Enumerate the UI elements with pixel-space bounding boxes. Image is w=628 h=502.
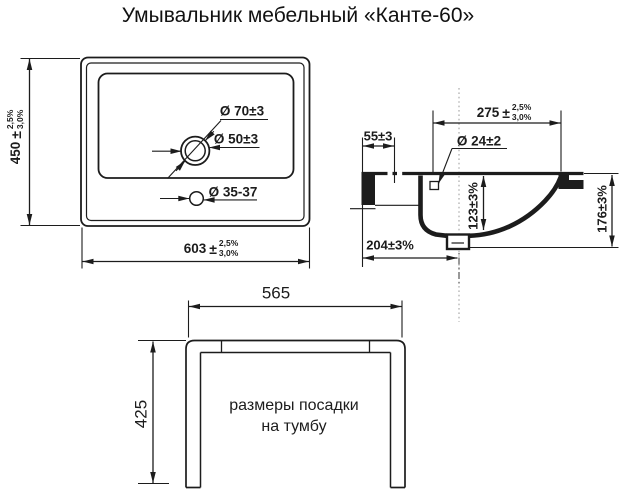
dim-mount-width: 565 [262, 285, 290, 302]
dim-front-width: 603± 2,5%3,0% [184, 239, 239, 259]
drawing-canvas: Умывальник мебельный «Канте-60» [0, 0, 628, 502]
dim-side-drain-offset: 204±3% [366, 239, 414, 252]
dim-front-height: 450± 2,5%3,0% [6, 110, 26, 165]
dim-side-bowl-depth: 123±3% [467, 182, 480, 230]
dim-mount-depth: 425 [133, 400, 150, 428]
dim-side-front-depth: 275± 2,5%3,0% [477, 103, 532, 123]
dim-side-back-ledge: 55±3 [364, 130, 393, 143]
label-faucet-hole-diameter: Ø 35-37 [209, 185, 258, 199]
label-overflow-inner-diameter: Ø 50±3 [214, 132, 258, 146]
label-overflow-hole-diameter: Ø 24±2 [457, 134, 501, 148]
mount-note-line1: размеры посадки [229, 395, 358, 416]
dim-side-total-height: 176±3% [596, 185, 609, 233]
mount-note: размеры посадки на тумбу [229, 395, 358, 437]
label-overflow-outer-diameter: Ø 70±3 [220, 104, 264, 118]
mount-note-line2: на тумбу [229, 416, 358, 437]
page-title: Умывальник мебельный «Канте-60» [122, 4, 474, 28]
